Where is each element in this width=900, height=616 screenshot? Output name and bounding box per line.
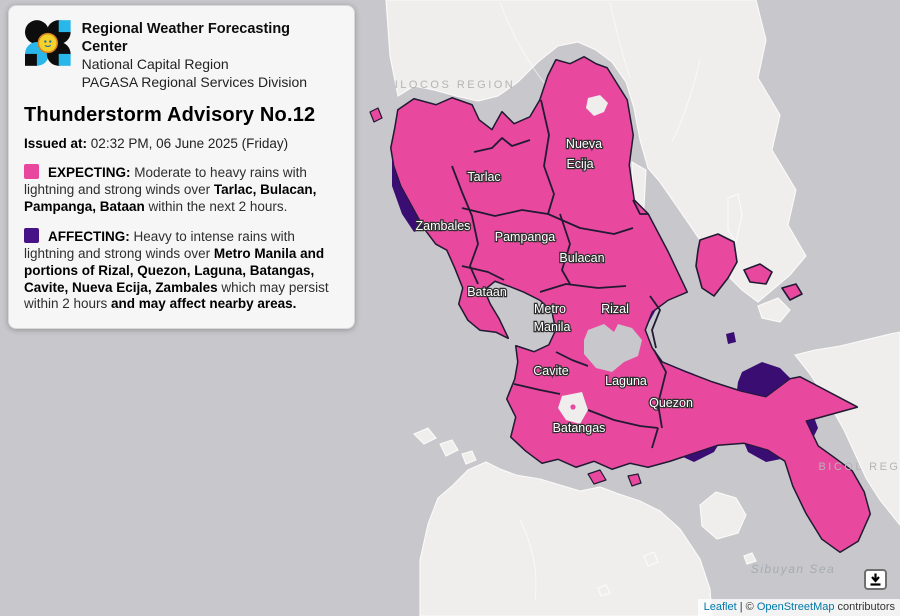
taal-volcano-island <box>570 404 575 409</box>
province-label: Pampanga <box>495 230 556 244</box>
org-division: PAGASA Regional Services Division <box>82 74 338 92</box>
sea-label: Sibuyan Sea <box>751 562 836 576</box>
province-label: Quezon <box>649 396 693 410</box>
app-window: ILOCOS REGIONBICOL REGIONSibuyan Sea Nue… <box>0 0 900 616</box>
province-label: Zambales <box>416 219 471 233</box>
issued-line: Issued at: 02:32 PM, 06 June 2025 (Frida… <box>24 136 338 151</box>
affecting-swatch <box>24 228 39 243</box>
expecting-text: EXPECTING: Moderate to heavy rains with … <box>24 165 316 213</box>
province-label: Tarlac <box>467 170 500 184</box>
province-label: Metro <box>534 302 566 316</box>
download-icon <box>869 573 882 586</box>
province-label: Ecija <box>566 157 593 171</box>
province-label: Nueva <box>566 137 602 151</box>
province-label: Manila <box>534 320 571 334</box>
province-label: Batangas <box>553 421 606 435</box>
map-attribution: Leaflet | © OpenStreetMap contributors <box>698 599 900 616</box>
attribution-separator: | © <box>737 601 757 613</box>
advisory-panel: Regional Weather Forecasting Center Nati… <box>8 5 355 329</box>
province-label: Laguna <box>605 374 647 388</box>
pagasa-logo-icon <box>24 19 72 67</box>
advisory-title: Thunderstorm Advisory No.12 <box>24 104 338 127</box>
affecting-text: AFFECTING: Heavy to intense rains with l… <box>24 229 329 311</box>
issued-value: 02:32 PM, 06 June 2025 (Friday) <box>91 136 288 151</box>
osm-link[interactable]: OpenStreetMap <box>757 601 835 613</box>
province-label: Bataan <box>467 285 507 299</box>
org-region: National Capital Region <box>82 56 338 74</box>
region-label: ILOCOS REGION <box>395 79 516 91</box>
region-label: BICOL REGION <box>818 461 900 473</box>
issued-label: Issued at: <box>24 136 87 151</box>
province-label: Bulacan <box>559 251 604 265</box>
org-name: Regional Weather Forecasting Center <box>82 20 338 56</box>
download-map-button[interactable] <box>864 569 887 590</box>
legend-expecting: EXPECTING: Moderate to heavy rains with … <box>24 164 338 215</box>
leaflet-link[interactable]: Leaflet <box>704 601 737 613</box>
legend-affecting: AFFECTING: Heavy to intense rains with l… <box>24 228 338 313</box>
attribution-suffix: contributors <box>834 601 895 613</box>
province-label: Rizal <box>601 302 629 316</box>
expecting-swatch <box>24 164 39 179</box>
province-label: Cavite <box>533 364 568 378</box>
